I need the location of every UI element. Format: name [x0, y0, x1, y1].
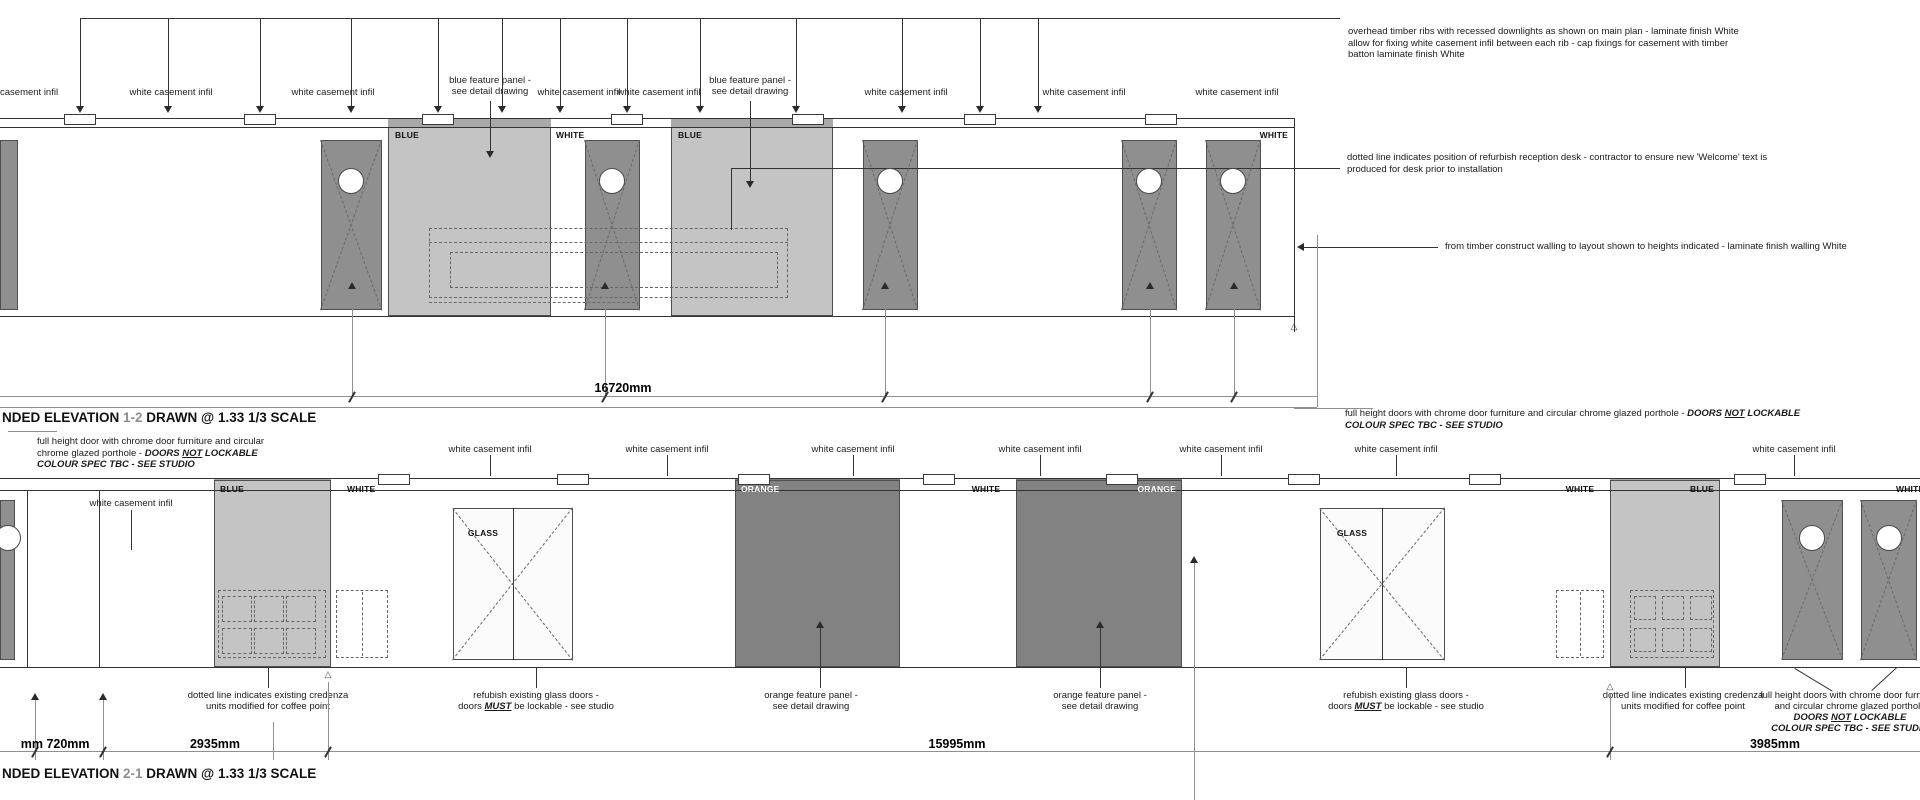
dimension-label: 16720mm — [595, 381, 652, 395]
porthole — [1799, 525, 1825, 551]
dashed-outline — [254, 596, 284, 622]
drawing-line — [1871, 667, 1897, 691]
leader-arrowhead — [76, 106, 84, 113]
annotation-line: dotted line indicates existing credenza — [188, 690, 349, 701]
leader-arrowhead — [99, 693, 107, 700]
drawing-line — [99, 490, 100, 667]
casement-label: white casement infil — [292, 87, 375, 98]
drawing-line — [0, 127, 1294, 128]
casement-label: white casement infil — [618, 87, 701, 98]
drawing-line — [1221, 455, 1222, 476]
panel-finish-label: GLASS — [1337, 528, 1367, 538]
casement-label: white casement infil — [1355, 444, 1438, 455]
casement-fixing-plate — [611, 114, 643, 125]
panel-finish-label: BLUE — [1690, 484, 1714, 494]
dashed-outline — [1662, 596, 1684, 620]
dimension-tick — [1230, 391, 1238, 402]
title-text: DRAWN @ 1.33 1/3 SCALE — [143, 410, 317, 425]
drawing-line — [27, 490, 28, 667]
drawing-line — [0, 118, 1294, 119]
casement-label: white casement infil — [865, 87, 948, 98]
dimension-tick — [348, 391, 356, 402]
datum-marker: △ — [1291, 321, 1298, 332]
dashed-outline — [1634, 628, 1656, 652]
casement-label: white casement infil — [90, 498, 173, 509]
annotation-line: refubish existing glass doors - — [1328, 690, 1484, 701]
leader-arrowhead — [623, 106, 631, 113]
casement-fixing-plate — [923, 474, 955, 485]
annotation-full-height-door-2-1: full height door with chrome door furnit… — [37, 436, 264, 471]
title-text: NDED ELEVATION — [2, 410, 123, 425]
leader-arrowhead — [1146, 282, 1154, 289]
panel-finish-label: WHITE — [556, 130, 584, 140]
drawing-line — [0, 316, 1294, 317]
dashed-outline — [254, 628, 284, 654]
door-panel — [0, 500, 15, 660]
annotation-line: refubish existing glass doors - — [458, 690, 614, 701]
casement-fixing-plate — [1288, 474, 1320, 485]
casement-label: white casement infil — [1043, 87, 1126, 98]
annotation-orange-panel-right: orange feature panel - see detail drawin… — [1053, 690, 1146, 712]
leader-arrowhead — [256, 106, 264, 113]
annotation-line: produced for desk prior to installation — [1347, 164, 1767, 176]
leader-arrowhead — [1096, 621, 1104, 628]
panel-finish-label: WHITE — [972, 484, 1000, 494]
drawing-line — [0, 478, 1920, 479]
drawing-line — [438, 18, 439, 106]
annotation-full-height-doors-1-2: full height doors with chrome door furni… — [1345, 408, 1800, 431]
drawing-line — [80, 18, 1340, 19]
drawing-line — [268, 667, 269, 688]
drawing-line — [131, 510, 132, 550]
drawing-line — [605, 289, 606, 396]
porthole — [877, 168, 903, 194]
casement-label: see detail drawing — [452, 86, 529, 97]
annotation-orange-panel-left: orange feature panel - see detail drawin… — [764, 690, 857, 712]
annotation-glass-doors-right: refubish existing glass doors - doors MU… — [1328, 690, 1484, 712]
drawing-line — [820, 628, 821, 688]
leader-arrowhead — [898, 106, 906, 113]
annotation-glass-doors-left: refubish existing glass doors - doors MU… — [458, 690, 614, 712]
drawing-line — [0, 490, 1920, 491]
panel-finish-label: BLUE — [220, 484, 244, 494]
casement-label: white casement infil — [538, 87, 621, 98]
drawing-line — [1580, 592, 1581, 656]
casement-fixing-plate — [1106, 474, 1138, 485]
drawing-line — [885, 289, 886, 396]
annotation-line: full height door with chrome door furnit… — [37, 436, 264, 448]
drawing-line — [853, 455, 854, 476]
panel-finish-label: WHITE — [1260, 130, 1288, 140]
dashed-outline — [450, 252, 778, 288]
dimension-tick — [881, 391, 889, 402]
dashed-outline — [1690, 628, 1712, 652]
datum-marker: △ — [1607, 681, 1614, 692]
annotation-line: orange feature panel - — [764, 690, 857, 701]
drawing-line — [0, 396, 1317, 397]
panel-finish-label: GLASS — [468, 528, 498, 538]
dashed-outline — [286, 628, 316, 654]
bulkhead-panel-band — [388, 119, 551, 127]
drawing-line — [0, 407, 1317, 408]
drawing-line — [260, 18, 261, 106]
dashed-outline — [1662, 628, 1684, 652]
annotation-full-height-doors-bottom: full height doors with chrome door furni… — [1760, 690, 1920, 734]
dimension-label: 720mm — [46, 737, 89, 751]
elevation-drawing: overhead timber ribs with recessed downl… — [0, 0, 1920, 800]
drawing-line — [429, 242, 788, 243]
dashed-outline — [1690, 596, 1712, 620]
porthole — [1136, 168, 1162, 194]
leader-arrowhead — [498, 106, 506, 113]
title-number: 1-2 — [123, 410, 143, 425]
leader-arrowhead — [601, 282, 609, 289]
dimension-tick — [1146, 391, 1154, 402]
drawing-line — [1294, 408, 1373, 409]
casement-fixing-plate — [1145, 114, 1177, 125]
drawing-line — [490, 455, 491, 476]
leader-arrowhead — [31, 693, 39, 700]
drawing-line — [1794, 455, 1795, 476]
leader-arrowhead — [1297, 243, 1304, 251]
annotation-line: see detail drawing — [764, 701, 857, 712]
drawing-line — [0, 751, 1920, 752]
casement-label: white casement infil — [999, 444, 1082, 455]
drawing-line — [980, 18, 981, 106]
drawing-line — [796, 18, 797, 106]
leader-arrowhead — [556, 106, 564, 113]
drawing-line — [667, 455, 668, 476]
annotation-line: COLOUR SPEC TBC - SEE STUDIO — [1760, 723, 1920, 734]
casement-fixing-plate — [792, 114, 824, 125]
annotation-reception-desk: dotted line indicates position of refurb… — [1347, 152, 1767, 175]
elevation-title-2-1: NDED ELEVATION 2-1 DRAWN @ 1.33 1/3 SCAL… — [2, 766, 316, 781]
panel-finish-label: WHITE — [347, 484, 375, 494]
annotation-line: orange feature panel - — [1053, 690, 1146, 701]
panel-finish-label: WHITE — [1896, 484, 1920, 494]
orange-feature-panel — [1016, 480, 1182, 667]
annotation-line: DOORS NOT LOCKABLE — [1760, 712, 1920, 723]
annotation-line: chrome glazed porthole - DOORS NOT LOCKA… — [37, 448, 264, 460]
leader-arrowhead — [792, 106, 800, 113]
annotation-line: full height doors with chrome door furni… — [1345, 408, 1800, 420]
drawing-line — [8, 431, 57, 432]
annotation-line: doors MUST be lockable - see studio — [458, 701, 614, 712]
casement-fixing-plate — [378, 474, 410, 485]
drawing-line — [273, 722, 274, 760]
annotation-credenza-left: dotted line indicates existing credenza … — [188, 690, 349, 712]
drawing-line — [750, 101, 751, 181]
orange-feature-panel — [735, 480, 900, 667]
drawing-line — [0, 667, 1920, 668]
dimension-label: 15995mm — [929, 737, 986, 751]
dashed-outline — [222, 596, 252, 622]
leader-arrowhead — [1190, 556, 1198, 563]
dimension-label: mm — [21, 737, 43, 751]
casement-label: blue feature panel - — [709, 75, 791, 86]
casement-label: see detail drawing — [712, 86, 789, 97]
drawing-line — [1794, 668, 1833, 692]
annotation-timber-walling: from timber construct walling to layout … — [1445, 241, 1847, 253]
title-text: DRAWN @ 1.33 1/3 SCALE — [143, 766, 317, 781]
leader-arrowhead — [348, 282, 356, 289]
drawing-line — [731, 168, 1340, 169]
annotation-line: batton laminate finish White — [1348, 49, 1739, 61]
drawing-line — [1100, 628, 1101, 688]
drawing-line — [1685, 667, 1686, 688]
leader-arrowhead — [746, 181, 754, 188]
casement-fixing-plate — [244, 114, 276, 125]
annotation-overhead-timber-ribs: overhead timber ribs with recessed downl… — [1348, 26, 1739, 61]
panel-finish-label: ORANGE — [741, 484, 780, 494]
casement-label: white casement infil — [812, 444, 895, 455]
annotation-line: see detail drawing — [1053, 701, 1146, 712]
annotation-line: units modified for coffee point — [188, 701, 349, 712]
annotation-line: from timber construct walling to layout … — [1445, 241, 1847, 253]
annotation-line: allow for fixing white casement infil be… — [1348, 38, 1739, 50]
datum-marker: △ — [325, 669, 332, 680]
panel-finish-label: BLUE — [678, 130, 702, 140]
dashed-outline — [1634, 596, 1656, 620]
annotation-line: dotted line indicates existing credenza — [1603, 690, 1764, 701]
porthole — [338, 168, 364, 194]
drawing-line — [1317, 235, 1318, 407]
drawing-line — [1294, 118, 1295, 332]
drawing-line — [1150, 289, 1151, 396]
casement-label: white casement infil — [1196, 87, 1279, 98]
annotation-line: doors MUST be lockable - see studio — [1328, 701, 1484, 712]
leader-arrowhead — [434, 106, 442, 113]
dimension-label: 3985mm — [1750, 737, 1800, 751]
leader-arrowhead — [816, 621, 824, 628]
title-number: 2-1 — [123, 766, 143, 781]
drawing-line — [362, 592, 363, 656]
casement-fixing-plate — [1734, 474, 1766, 485]
drawing-line — [80, 18, 81, 106]
annotation-line: overhead timber ribs with recessed downl… — [1348, 26, 1739, 38]
drawing-line — [731, 168, 732, 230]
drawing-line — [1299, 247, 1438, 248]
porthole — [1876, 525, 1902, 551]
porthole — [0, 525, 21, 551]
drawing-line — [536, 667, 537, 688]
porthole — [599, 168, 625, 194]
annotation-credenza-right: dotted line indicates existing credenza … — [1603, 690, 1764, 712]
annotation-line: and circular chrome glazed porthole — [1760, 701, 1920, 712]
casement-label: white casement infil — [449, 444, 532, 455]
drawing-line — [1234, 289, 1235, 396]
casement-fixing-plate — [64, 114, 96, 125]
casement-fixing-plate — [557, 474, 589, 485]
drawing-line — [1040, 455, 1041, 476]
casement-label: white casement infil — [1753, 444, 1836, 455]
casement-fixing-plate — [964, 114, 996, 125]
leader-arrowhead — [1230, 282, 1238, 289]
panel-finish-label: BLUE — [395, 130, 419, 140]
leader-arrowhead — [347, 106, 355, 113]
leader-arrowhead — [1034, 106, 1042, 113]
panel-finish-label: WHITE — [1566, 484, 1594, 494]
dimension-label: 2935mm — [190, 737, 240, 751]
annotation-line: COLOUR SPEC TBC - SEE STUDIO — [37, 459, 264, 471]
leader-arrowhead — [696, 106, 704, 113]
casement-label: white casement infil — [130, 87, 213, 98]
leader-arrowhead — [486, 151, 494, 158]
annotation-line: full height doors with chrome door furni… — [1760, 690, 1920, 701]
dashed-outline — [286, 596, 316, 622]
door-panel — [0, 140, 18, 310]
drawing-line — [352, 289, 353, 396]
drawing-line — [1396, 455, 1397, 476]
drawing-line — [429, 302, 640, 303]
annotation-line: COLOUR SPEC TBC - SEE STUDIO — [1345, 420, 1800, 432]
leader-arrowhead — [881, 282, 889, 289]
drawing-line — [1406, 667, 1407, 688]
leader-arrowhead — [164, 106, 172, 113]
casement-fixing-plate — [422, 114, 454, 125]
casement-label: blue feature panel - — [449, 75, 531, 86]
drawing-line — [1194, 563, 1195, 800]
annotation-line: units modified for coffee point — [1603, 701, 1764, 712]
casement-label: casement infil — [0, 87, 58, 98]
casement-fixing-plate — [1469, 474, 1501, 485]
casement-label: white casement infil — [1180, 444, 1263, 455]
porthole — [1220, 168, 1246, 194]
leader-arrowhead — [976, 106, 984, 113]
casement-label: white casement infil — [626, 444, 709, 455]
drawing-line — [490, 101, 491, 151]
panel-finish-label: ORANGE — [1137, 484, 1176, 494]
annotation-line: dotted line indicates position of refurb… — [1347, 152, 1767, 164]
drawing-line — [1038, 18, 1039, 106]
title-text: NDED ELEVATION — [2, 766, 123, 781]
dashed-outline — [222, 628, 252, 654]
elevation-title-1-2: NDED ELEVATION 1-2 DRAWN @ 1.33 1/3 SCAL… — [2, 410, 316, 425]
